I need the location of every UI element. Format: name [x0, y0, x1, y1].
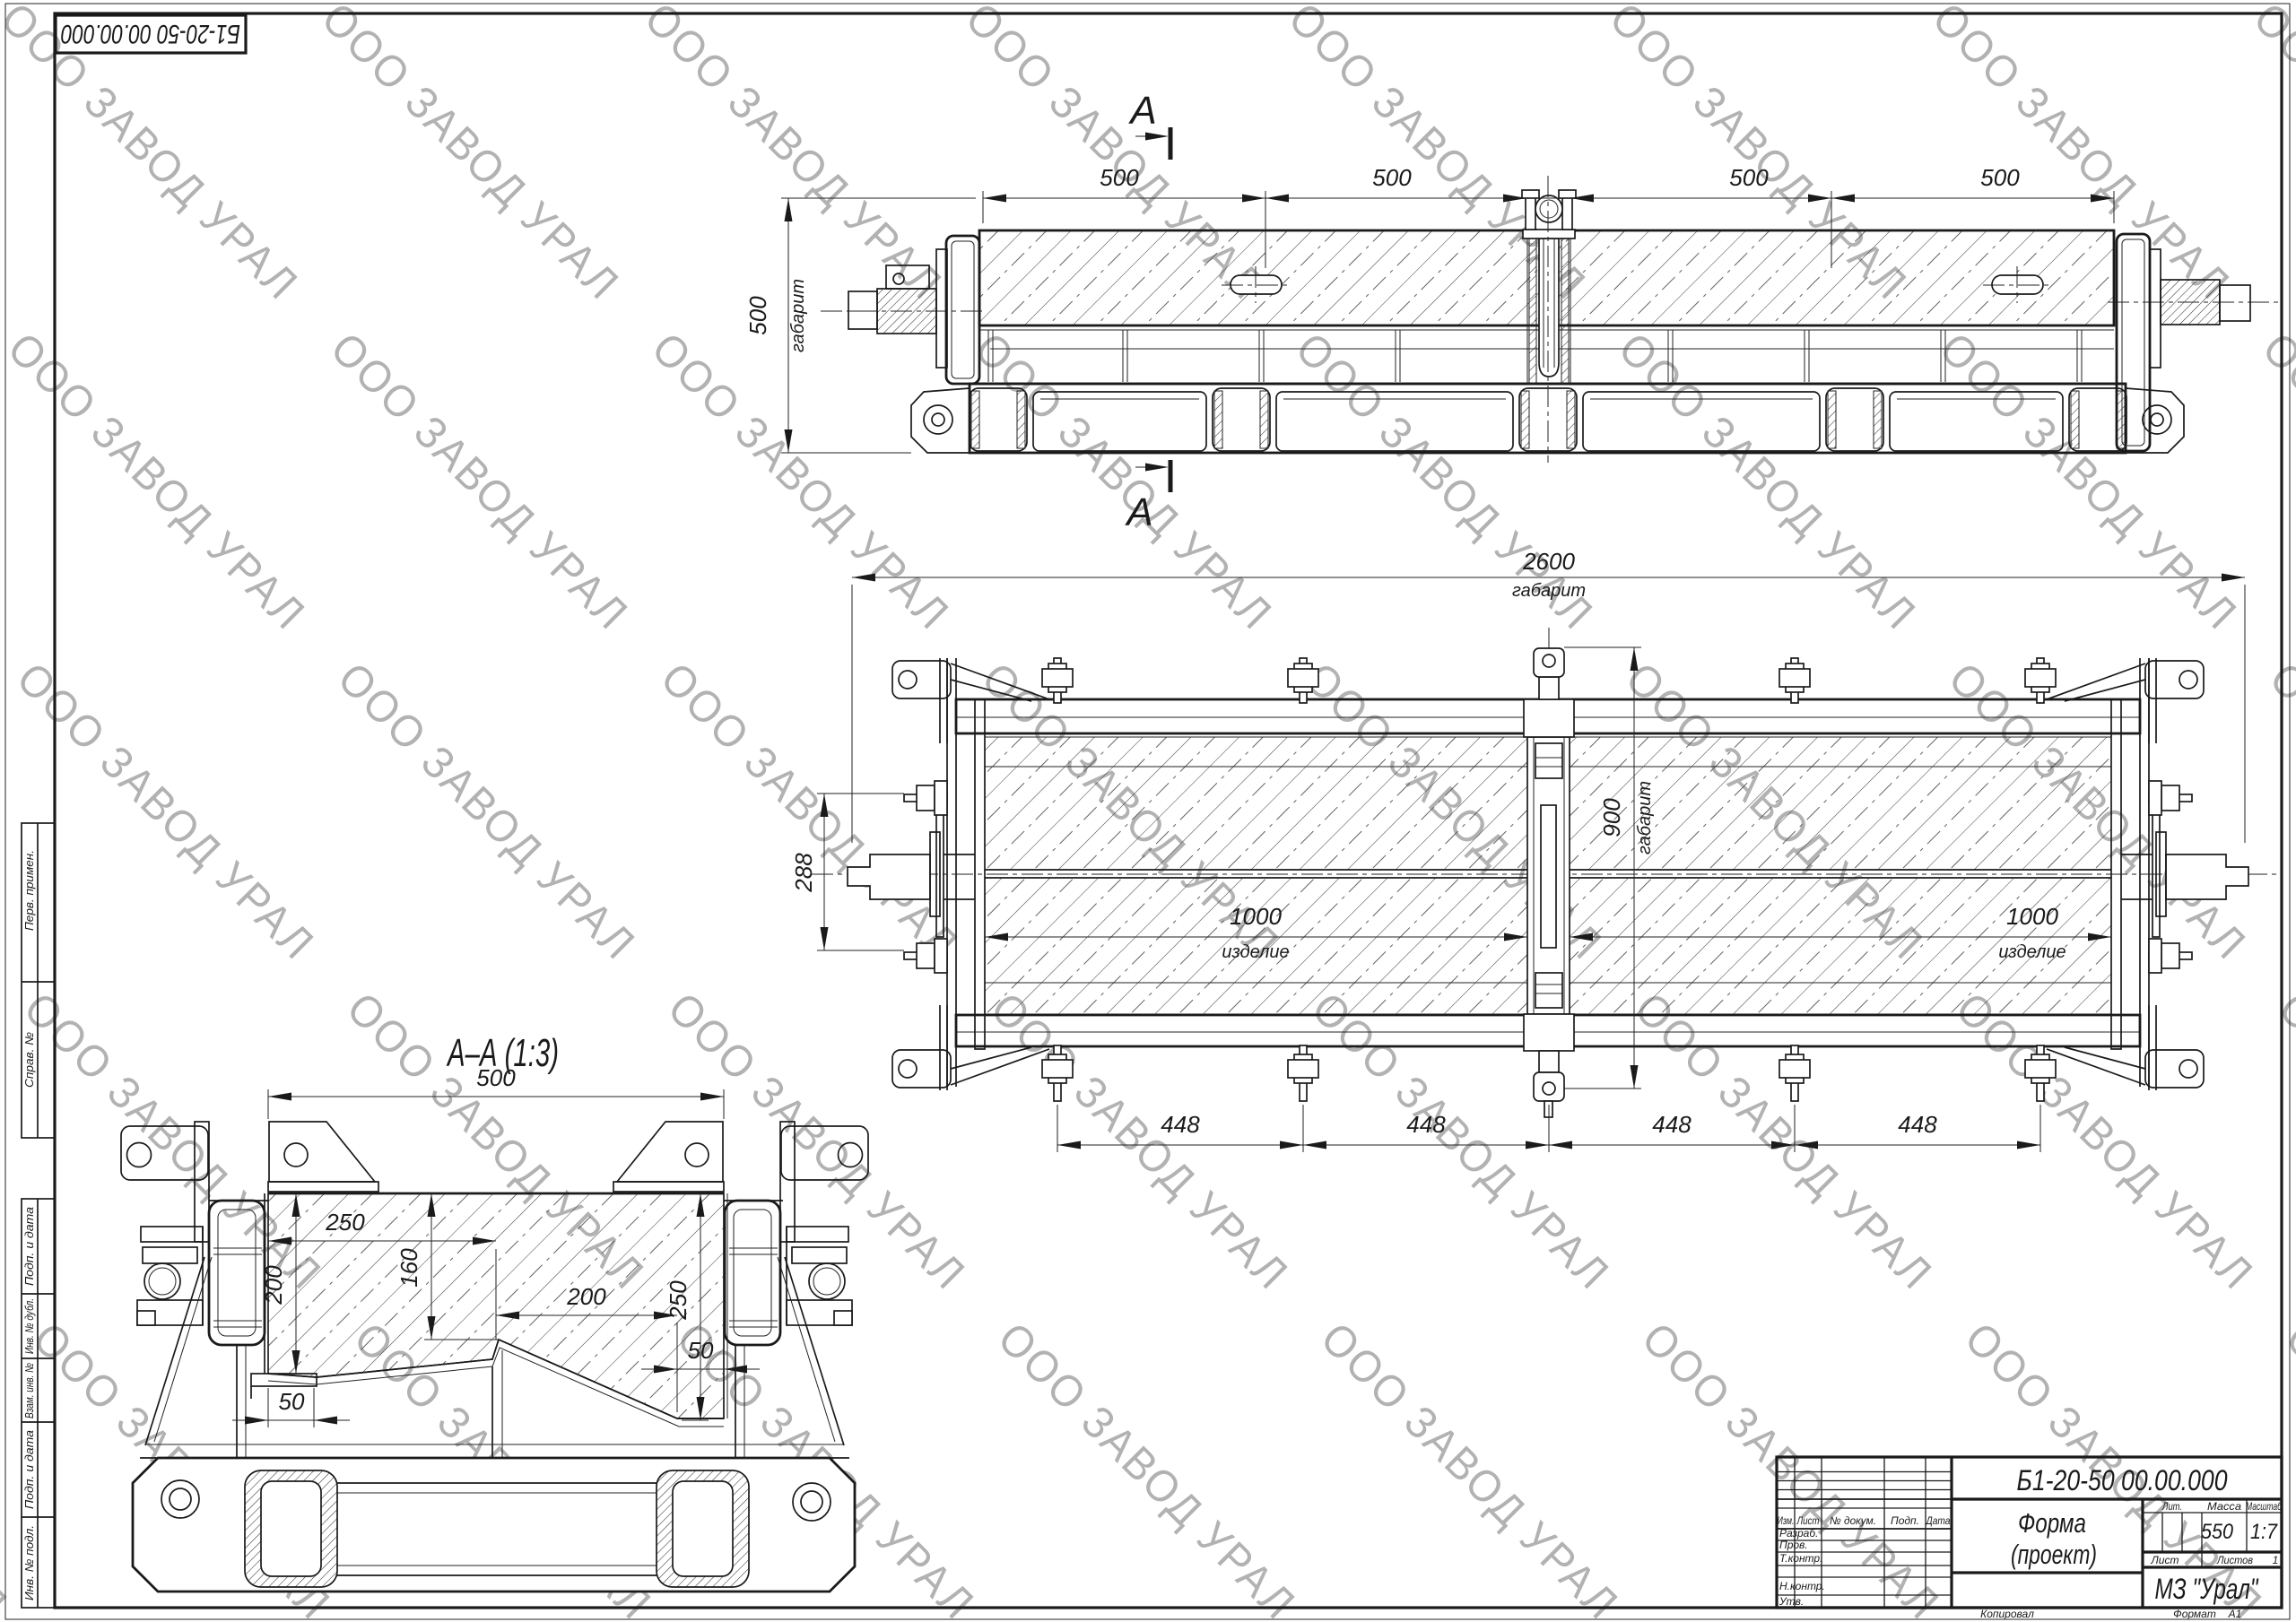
svg-text:Масштаб: Масштаб — [2246, 1500, 2283, 1513]
svg-text:Дата: Дата — [1925, 1514, 1951, 1527]
svg-text:Справ. №: Справ. № — [22, 1032, 36, 1088]
svg-text:габарит: габарит — [1635, 781, 1655, 854]
svg-text:900: 900 — [1598, 798, 1625, 837]
svg-text:МЗ "Урал": МЗ "Урал" — [2155, 1573, 2259, 1605]
svg-text:Подп. и дата: Подп. и дата — [22, 1430, 36, 1509]
svg-text:А: А — [1127, 89, 1156, 133]
svg-text:50: 50 — [688, 1337, 714, 1364]
svg-text:габарит: габарит — [788, 279, 808, 352]
svg-text:Изм.: Изм. — [1778, 1514, 1795, 1527]
svg-text:А1: А1 — [2228, 1608, 2242, 1620]
svg-text:288: 288 — [790, 853, 817, 893]
svg-text:448: 448 — [1898, 1111, 1937, 1138]
svg-text:Разраб.: Разраб. — [1779, 1527, 1818, 1540]
svg-text:Листов: Листов — [2216, 1554, 2253, 1566]
svg-text:Формат: Формат — [2173, 1608, 2216, 1620]
svg-text:200: 200 — [260, 1265, 287, 1305]
svg-text:160: 160 — [396, 1248, 422, 1288]
svg-text:Лист: Лист — [2151, 1554, 2179, 1566]
svg-text:Подп. и дата: Подп. и дата — [22, 1207, 36, 1286]
svg-text:500: 500 — [1980, 164, 2020, 191]
svg-text:50: 50 — [279, 1388, 305, 1415]
svg-text:Н.контр.: Н.контр. — [1779, 1580, 1825, 1592]
svg-text:200: 200 — [566, 1283, 606, 1310]
svg-text:448: 448 — [1406, 1111, 1446, 1138]
svg-text:500: 500 — [476, 1064, 516, 1091]
svg-text:Т.контр.: Т.контр. — [1779, 1552, 1822, 1565]
svg-text:Масса: Масса — [2207, 1500, 2241, 1513]
svg-text:1000: 1000 — [2006, 903, 2058, 930]
svg-text:448: 448 — [1161, 1111, 1200, 1138]
svg-text:Б1-20-50 00.00.000: Б1-20-50 00.00.000 — [61, 19, 240, 48]
svg-text:500: 500 — [1100, 164, 1139, 191]
svg-text:изделие: изделие — [1998, 942, 2066, 962]
svg-text:2600: 2600 — [1522, 548, 1575, 575]
svg-text:Утв.: Утв. — [1779, 1595, 1804, 1608]
svg-text:550: 550 — [2201, 1520, 2234, 1544]
svg-text:500: 500 — [1372, 164, 1412, 191]
svg-text:габарит: габарит — [1512, 581, 1586, 601]
svg-text:Форма: Форма — [2018, 1507, 2086, 1539]
svg-text:500: 500 — [744, 296, 771, 335]
svg-text:500: 500 — [1729, 164, 1769, 191]
svg-text:Подп.: Подп. — [1891, 1514, 1919, 1527]
svg-text:Копировал: Копировал — [1980, 1608, 2034, 1620]
svg-text:448: 448 — [1652, 1111, 1692, 1138]
svg-text:Лит.: Лит. — [2161, 1500, 2182, 1513]
svg-text:250: 250 — [665, 1280, 691, 1321]
svg-text:№ докум.: № докум. — [1830, 1514, 1876, 1527]
svg-text:1: 1 — [2273, 1554, 2279, 1566]
svg-text:Лист: Лист — [1796, 1514, 1820, 1527]
svg-text:250: 250 — [325, 1209, 365, 1236]
svg-text:1:7: 1:7 — [2250, 1520, 2278, 1544]
svg-text:Перв. примен.: Перв. примен. — [22, 850, 36, 931]
svg-text:Взам. инв. №: Взам. инв. № — [22, 1363, 36, 1418]
svg-text:Инв. № дубл.: Инв. № дубл. — [22, 1298, 36, 1354]
svg-text:(проект): (проект) — [2011, 1539, 2097, 1570]
svg-text:1000: 1000 — [1230, 903, 1282, 930]
svg-text:Б1-20-50 00.00.000: Б1-20-50 00.00.000 — [2017, 1464, 2228, 1496]
svg-text:Пров.: Пров. — [1779, 1539, 1808, 1551]
svg-text:А: А — [1124, 490, 1152, 534]
svg-text:изделие: изделие — [1222, 942, 1289, 962]
svg-text:Инв. № подл.: Инв. № подл. — [22, 1525, 36, 1600]
